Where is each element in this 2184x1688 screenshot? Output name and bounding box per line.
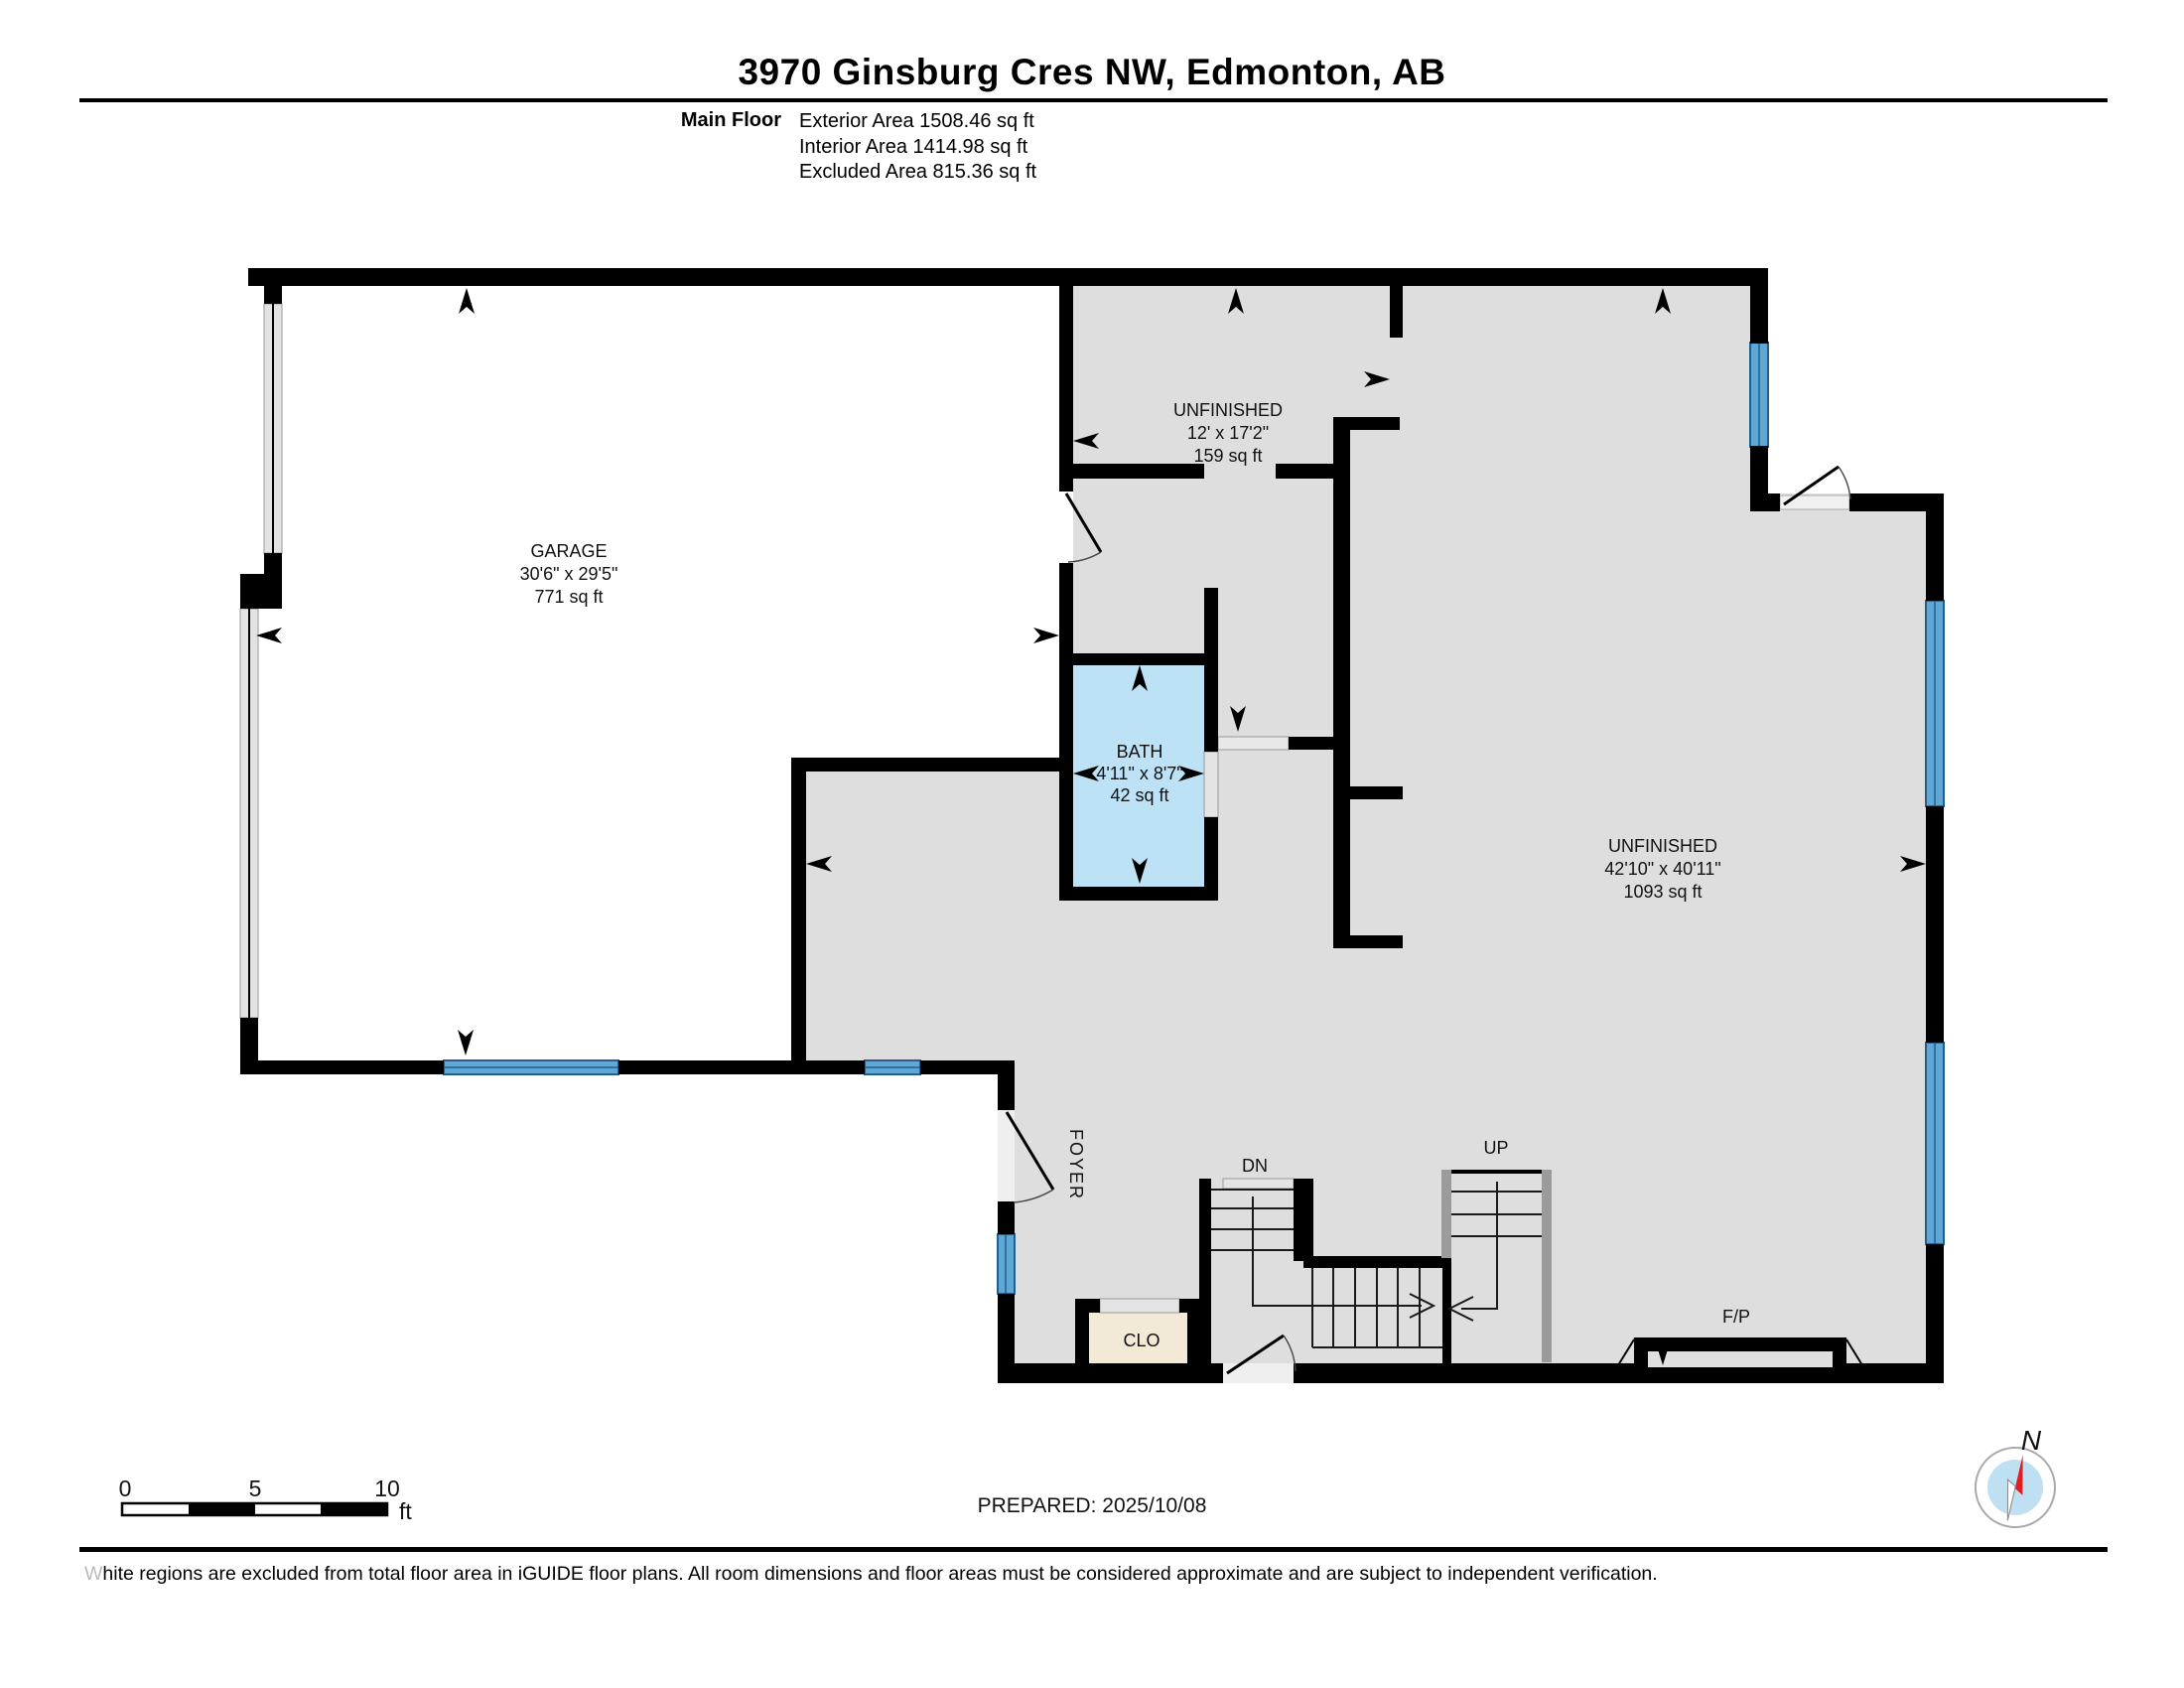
entry-door-gap — [1223, 1363, 1294, 1383]
north-label: N — [2021, 1425, 2042, 1456]
unfinished-main-area: 1093 sq ft — [1623, 882, 1702, 902]
scale-unit: ft — [399, 1498, 412, 1524]
bath-dims: 4'11" x 8'7" — [1096, 764, 1182, 783]
prepared-date: PREPARED: 2025/10/08 — [978, 1494, 1207, 1517]
interior-region — [791, 286, 1944, 1383]
bath-label: BATH — [1117, 742, 1163, 762]
closet-label: CLO — [1123, 1331, 1160, 1350]
floorplan-page: 3970 Ginsburg Cres NW, Edmonton, AB Main… — [0, 0, 2184, 1688]
closet-door — [1100, 1299, 1179, 1313]
footer-disclaimer: White regions are excluded from total fl… — [84, 1563, 1658, 1586]
arrow-right-icon — [1033, 628, 1059, 643]
unfinished-upper-label: UNFINISHED — [1173, 400, 1283, 420]
unfinished-main-dims: 42'10" x 40'11" — [1604, 859, 1720, 879]
scale-bar: 0 5 10 ft — [119, 1476, 413, 1524]
garage-door-icon — [240, 304, 282, 1018]
garage-area: 771 sq ft — [534, 587, 603, 607]
patio-door-gap — [1780, 495, 1849, 509]
scale-10: 10 — [374, 1476, 400, 1501]
arrow-down-icon — [458, 1030, 474, 1055]
arrow-up-icon — [459, 288, 475, 314]
arrow-left-icon — [256, 628, 282, 643]
stairs-down-label: DN — [1242, 1156, 1268, 1176]
dn-stair-door — [1223, 1179, 1294, 1189]
floorplan-drawing: GARAGE 30'6" x 29'5" 771 sq ft UNFINISHE… — [0, 0, 2184, 1688]
hall-doorway — [1218, 737, 1289, 750]
foyer-label: FOYER — [1066, 1129, 1086, 1200]
scale-5: 5 — [249, 1476, 262, 1501]
bath-door — [1204, 752, 1218, 817]
garage-label: GARAGE — [530, 541, 607, 561]
bath-area: 42 sq ft — [1110, 785, 1168, 805]
stairs-up-label: UP — [1483, 1138, 1508, 1158]
scale-0: 0 — [119, 1476, 132, 1501]
garage-dims: 30'6" x 29'5" — [520, 564, 618, 584]
unfinished-upper-dims: 12' x 17'2" — [1187, 423, 1269, 443]
unfinished-upper-area: 159 sq ft — [1193, 446, 1262, 466]
unfinished-main-label: UNFINISHED — [1608, 836, 1717, 856]
fireplace-label: F/P — [1722, 1307, 1750, 1327]
compass-icon: N — [1976, 1425, 2055, 1527]
footer-divider — [79, 1547, 2108, 1552]
